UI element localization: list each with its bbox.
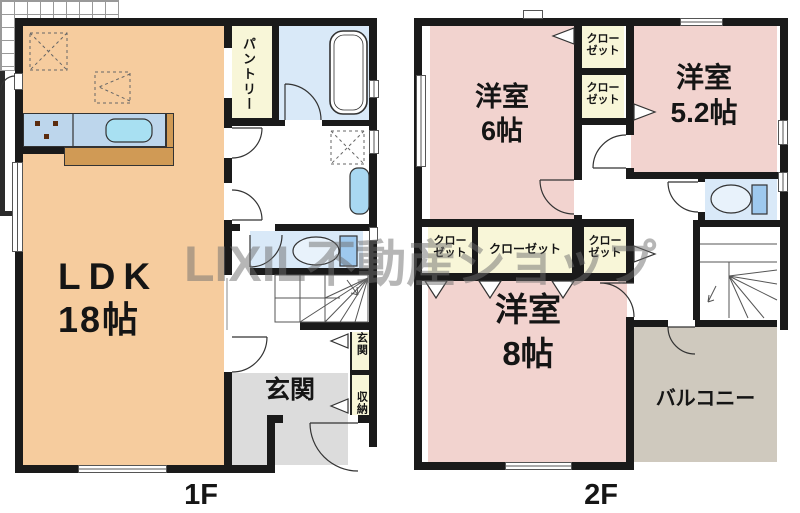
stove-burner xyxy=(53,121,58,126)
closet-door-mark xyxy=(634,246,655,262)
closet-label: クロー ゼット xyxy=(428,235,472,259)
closet-label-line: クロー xyxy=(587,82,620,94)
kitchen-sink xyxy=(106,119,152,142)
closet-label-line: クロー xyxy=(589,235,622,247)
closet-label-line: クロー xyxy=(587,33,620,45)
stairs-1f-winders xyxy=(300,278,368,322)
closet-label-line: クロー xyxy=(434,235,467,247)
closet-label-line: ゼット xyxy=(589,247,622,259)
door-arc xyxy=(540,180,574,214)
bathtub xyxy=(330,31,367,114)
floor-plan: 玄関 収納 xyxy=(0,0,800,513)
closet-label: クロー ゼット xyxy=(582,82,624,106)
stairs-1f-steps xyxy=(275,275,340,322)
room-name: 洋室 xyxy=(428,288,628,332)
washing-machine-x xyxy=(331,131,364,164)
room-name: 洋室 xyxy=(430,80,574,114)
room-name: 洋室 xyxy=(631,60,777,95)
bedroom52-label: 洋室 5.2帖 xyxy=(631,60,777,130)
stove-burner xyxy=(35,121,40,126)
entrance-door-arc xyxy=(310,423,358,471)
entrance-label: 玄関 xyxy=(238,376,342,405)
ldk-label: LDK 18帖 xyxy=(58,256,228,340)
stairs-2f-winders xyxy=(729,270,777,318)
door-arc xyxy=(250,235,282,267)
room-size: 5.2帖 xyxy=(631,95,777,130)
ldk-name: LDK xyxy=(58,256,228,299)
floor2-label: 2F xyxy=(568,479,634,512)
floor1-label: 1F xyxy=(168,479,234,512)
door-arc xyxy=(1,76,15,90)
door-arc xyxy=(668,182,698,212)
balcony-label: バルコニー xyxy=(634,388,777,411)
cupboard-space-mark xyxy=(99,74,130,101)
door-arc xyxy=(593,135,626,168)
door-arc xyxy=(232,128,262,158)
bedroom8-label: 洋室 8帖 xyxy=(428,288,628,376)
closet-label-line: ゼット xyxy=(434,247,467,259)
bedroom6-label: 洋室 6帖 xyxy=(430,80,574,148)
storage-door-mark xyxy=(331,334,348,348)
closet-label-line: ゼット xyxy=(587,45,620,57)
balcony-door-arc xyxy=(668,327,695,354)
door-arc xyxy=(285,84,321,120)
toilet-bowl xyxy=(293,237,339,265)
closet-label: クローゼット xyxy=(478,243,572,255)
stairs-2f-arrow xyxy=(708,286,716,302)
refrigerator-space-x xyxy=(30,33,67,70)
vanity-sink xyxy=(350,168,369,214)
room-size: 8帖 xyxy=(428,332,628,376)
pantry-label: パントリー xyxy=(240,31,255,117)
closet-label-line: ゼット xyxy=(587,94,620,106)
door-arc xyxy=(232,190,262,220)
stove-burner xyxy=(44,134,49,139)
closet-label: クロー ゼット xyxy=(582,33,624,57)
closet-label: クロー ゼット xyxy=(584,235,626,259)
toilet-tank xyxy=(752,185,767,214)
room-size: 6帖 xyxy=(430,114,574,148)
ldk-size: 18帖 xyxy=(58,299,228,340)
closet-door-mark xyxy=(553,28,574,44)
toilet-bowl xyxy=(711,185,751,213)
door-arc xyxy=(232,337,267,372)
toilet-tank xyxy=(340,236,357,266)
